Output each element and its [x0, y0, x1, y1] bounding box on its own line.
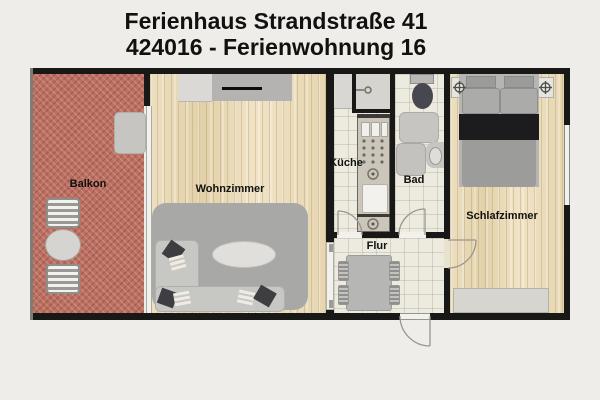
room-label-balkon: Balkon — [70, 178, 107, 190]
floorplan-screen: Ferienhaus Strandstraße 41 424016 - Feri… — [0, 0, 600, 400]
room-label-wohnzimmer: Wohnzimmer — [196, 183, 265, 195]
room-label-schlafzimmer: Schlafzimmer — [466, 210, 538, 222]
room-label-kueche: Küche — [329, 157, 363, 169]
room-label-bad: Bad — [404, 174, 425, 186]
door-swing-arcs — [0, 0, 600, 400]
room-label-flur: Flur — [367, 240, 388, 252]
